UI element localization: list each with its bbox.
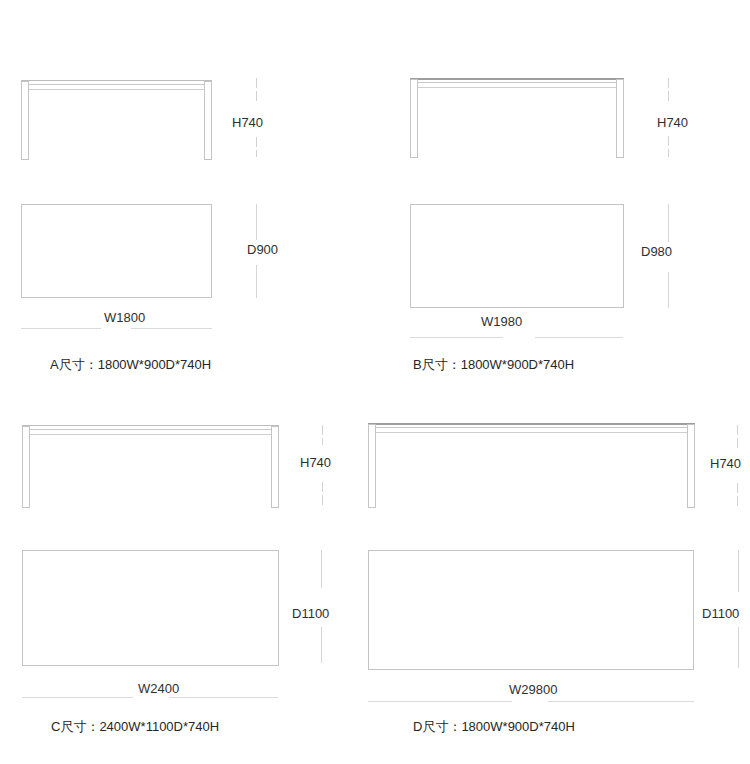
panel-d: H740 D1100 W29800 D尺寸：1800W*900D*740H xyxy=(0,0,750,764)
table-leg-left xyxy=(368,424,376,508)
depth-dimension-label: D1100 xyxy=(702,607,739,621)
tabletop-top-edge xyxy=(368,423,695,425)
depth-dimension-line xyxy=(738,550,739,592)
width-dimension-line xyxy=(368,701,512,702)
table-front-view xyxy=(368,423,695,508)
height-dimension-label: H740 xyxy=(710,457,741,471)
table-top-view xyxy=(368,550,694,670)
dimension-drawing-page: H740 D900 W1800 A尺寸：1800W*900D*740H H740… xyxy=(0,0,750,764)
height-dimension-line xyxy=(737,483,738,508)
table-leg-right xyxy=(687,424,695,508)
depth-dimension-line xyxy=(738,627,739,668)
width-dimension-label: W29800 xyxy=(509,683,557,697)
size-caption: D尺寸：1800W*900D*740H xyxy=(413,719,575,734)
height-dimension-line xyxy=(737,425,738,448)
tabletop-bottom-edge xyxy=(376,427,687,428)
table-apron-line xyxy=(376,432,687,433)
width-dimension-line xyxy=(548,701,694,702)
